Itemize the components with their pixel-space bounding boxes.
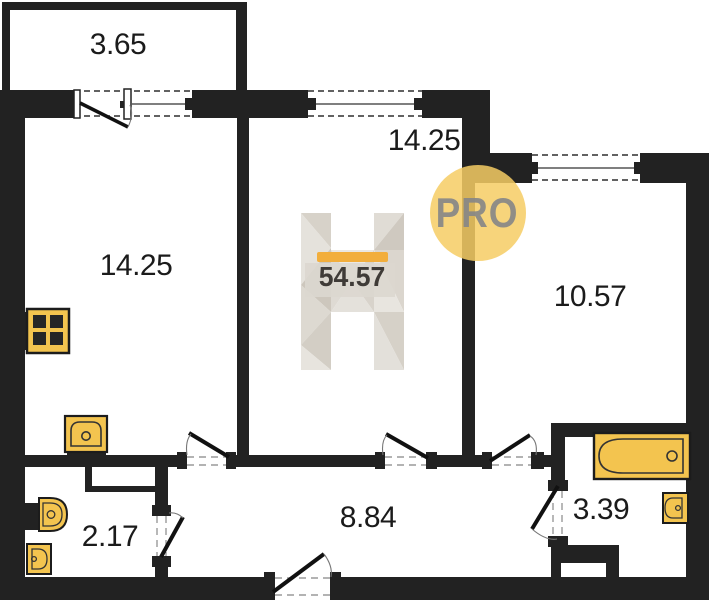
- door-entrance: [273, 554, 331, 595]
- window-room2: [528, 155, 644, 180]
- door-wc: [157, 513, 183, 557]
- wall-wc: [155, 567, 168, 577]
- room-label-bathroom: 3.39: [573, 493, 629, 527]
- balcony-parapet-left: [2, 2, 10, 92]
- stove-icon: [23, 309, 69, 353]
- window-bedroom: [306, 91, 424, 116]
- balcony-parapet-right: [236, 2, 247, 92]
- wall-hallway-top: [436, 455, 483, 467]
- wall-bathroom: [551, 423, 565, 485]
- wall-top: [192, 90, 308, 118]
- door-kitchen: [187, 433, 230, 465]
- bathroom-sink-icon: [663, 493, 688, 523]
- room-label-balcony: 3.65: [90, 28, 146, 62]
- bathtub-icon: [594, 433, 690, 479]
- windows: [74, 89, 644, 180]
- balcony-parapet-top: [2, 2, 247, 10]
- floor-plan: 3.65 14.25 14.25 10.57 8.84 2.17 3.39 54…: [0, 0, 709, 600]
- door-bedroom: [383, 434, 429, 465]
- wall-right: [686, 183, 709, 600]
- wc-sink-icon: [27, 544, 51, 574]
- balcony-door-window: [74, 89, 195, 127]
- wall-top-right: [640, 153, 709, 183]
- wall-bottom: [0, 577, 268, 600]
- room-label-kitchen: 14.25: [100, 249, 173, 283]
- total-area-label: 54.57: [319, 261, 386, 293]
- wall-top: [422, 90, 490, 118]
- pro-watermark-label: PRO: [436, 189, 519, 237]
- kitchen-sink-icon: [65, 416, 107, 459]
- wall-hallway-top: [236, 455, 376, 467]
- shaft-notch: [561, 563, 606, 577]
- toilet-icon: [24, 498, 67, 531]
- room-label-room2: 10.57: [554, 280, 627, 314]
- door-room2: [490, 435, 536, 465]
- wall-bottom: [334, 577, 709, 600]
- wall-left: [0, 90, 25, 600]
- door-swing-icon: [187, 434, 192, 455]
- wall-kitchen-bedroom: [237, 118, 249, 455]
- duct-wall: [85, 486, 157, 492]
- wall-shaft: [551, 545, 606, 563]
- room-label-hallway: 8.84: [340, 501, 396, 535]
- door-bathroom: [532, 486, 562, 539]
- room-label-bedroom: 14.25: [388, 124, 461, 158]
- room-label-wc: 2.17: [82, 520, 138, 554]
- wall-shaft: [606, 545, 619, 577]
